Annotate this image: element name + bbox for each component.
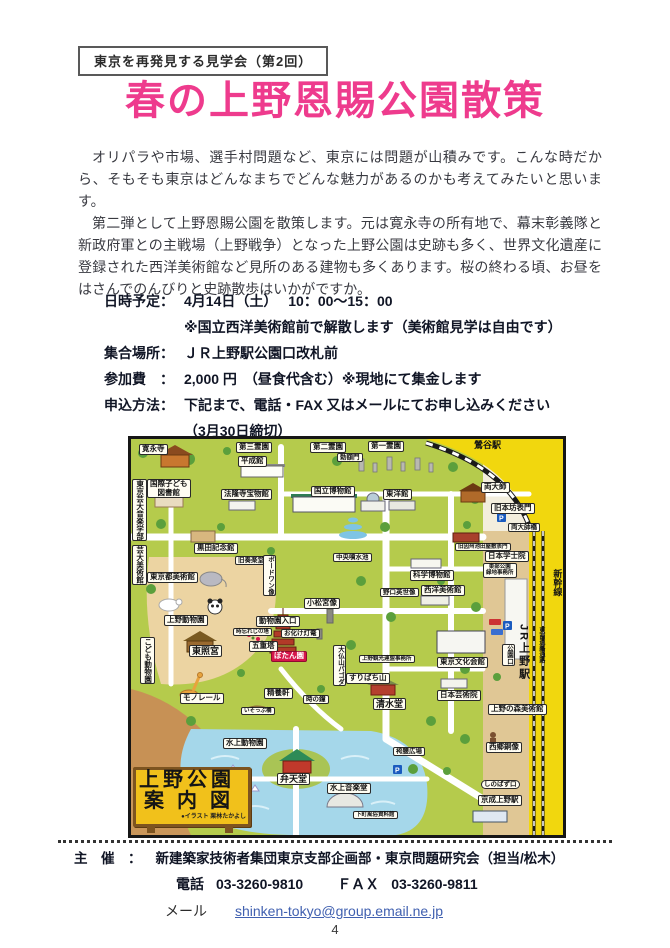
flyer-page: 東京を再発見する見学会（第2回） 春の上野恩賜公園散策 オリパラや市場、選手村問… — [0, 0, 670, 948]
map-label: 東京芸大音楽学部 — [132, 479, 147, 541]
map-label: 水上音楽堂 — [327, 783, 371, 794]
map-label: いそっぷ橋 — [241, 707, 275, 715]
map-label: 時忘れじの塔 — [233, 628, 272, 636]
detail-value: ＪＲ上野駅公園口改札前 — [184, 340, 604, 366]
email-line: メールshinken-tokyo@group.email.ne.jp — [165, 901, 443, 921]
sign-title-line2: 案内図 — [136, 791, 248, 811]
series-label: 東京を再発見する見学会（第2回） — [94, 54, 312, 69]
map-label: モノレール — [180, 693, 224, 704]
map-label: 東照宮 — [189, 645, 222, 657]
map-label: 袴腰広場 — [393, 747, 425, 756]
map-label: 時の鐘 — [303, 695, 329, 704]
map-label: 鶯谷駅 — [472, 440, 503, 450]
map-label: 中央噴水池 — [333, 553, 372, 562]
map-label: 大仏山パゴダ — [333, 645, 346, 686]
map-label: 芸大美術館 — [132, 545, 147, 585]
tel-number: 03-3260-9810 — [216, 876, 303, 892]
sign-leg — [225, 825, 233, 833]
map-label: 野口英世像 — [380, 588, 419, 597]
sign-leg — [147, 825, 155, 833]
map-label: 京成上野駅 — [478, 795, 522, 806]
event-details: 日時予定： 4月14日（土） 10：00～15：00 ※国立西洋美術館前で解散し… — [104, 288, 604, 444]
detail-row-fee: 参加費 ： 2,000 円 （昼食代含む）※現地にて集金します — [104, 366, 604, 392]
detail-note-dissolve: ※国立西洋美術館前で解散します（美術館見学は自由です） — [184, 314, 604, 340]
map-label: 水上動物園 — [223, 738, 267, 749]
series-label-box: 東京を再発見する見学会（第2回） — [78, 46, 328, 76]
map-label: 動物園入口 — [256, 616, 300, 627]
organizer-line: 主 催 ：新建築家技術者集団東京支部企画部・東京問題研究会（担当/松木） — [74, 847, 614, 867]
tel-label: 電話 — [176, 876, 204, 892]
page-number: 4 — [0, 922, 670, 937]
map-label: 上野観光連盟事務所 — [359, 655, 415, 663]
map-label: 精養軒 — [264, 688, 293, 699]
map-label: 科学博物館 — [410, 570, 454, 581]
map-label: 第二霊園 — [310, 442, 346, 453]
detail-label: 参加費 ： — [104, 366, 184, 392]
map-label: 両大師 — [481, 482, 510, 493]
map-label: 旧本坊表門 — [491, 503, 535, 514]
detail-value: 下記まで、電話・FAX 又はメールにてお申し込みください — [184, 392, 604, 418]
map-label: 小松宮像 — [304, 598, 340, 609]
map-label: 第三霊園 — [236, 442, 272, 453]
dotted-divider — [58, 840, 612, 843]
phone-fax-line: 電話03-3260-9810ＦＡＸ03-3260-9811 — [176, 874, 478, 894]
map-label: 黒田記念館 — [194, 543, 238, 554]
map-label: ボードワン像 — [263, 555, 276, 596]
map-label: ぼたん園 — [271, 651, 307, 662]
map-label: 上野の森美術館 — [488, 704, 547, 715]
map-label: 勅額門 — [337, 453, 363, 462]
map-label: JR上野駅 — [515, 624, 532, 681]
map-label: 日本学士院 — [485, 551, 529, 562]
detail-value: 4月14日（土） 10：00～15：00 — [184, 288, 604, 314]
detail-row-meeting-place: 集合場所： ＪＲ上野駅公園口改札前 — [104, 340, 604, 366]
page-title: 春の上野恩賜公園散策 — [0, 78, 670, 124]
detail-row-datetime: 日時予定： 4月14日（土） 10：00～15：00 — [104, 288, 604, 314]
email-label: メール — [165, 903, 207, 919]
map-label: 下町風俗資料館 — [353, 811, 398, 819]
map-label: 日本芸術院 — [437, 690, 481, 701]
map-label: 平成館 — [238, 456, 267, 467]
fax-number: 03-3260-9811 — [391, 876, 477, 892]
detail-label: 日時予定： — [104, 288, 184, 314]
map-label: 上野動物園 — [164, 615, 208, 626]
detail-label: 申込方法： — [104, 392, 184, 418]
organizer-label: 主 催 ： — [74, 851, 142, 866]
map-label: 国立博物館 — [311, 486, 355, 497]
intro-paragraph-1: オリパラや市場、選手村問題など、東京には問題が山積みです。こんな時だから、そもそ… — [78, 146, 602, 212]
map-label: 東西連絡通路 — [535, 627, 546, 663]
fax-label: ＦＡＸ — [337, 876, 379, 892]
map-label: 東京都美術館 — [147, 572, 198, 583]
park-sign-board: 上野公園 案内図 ●イラスト 栗林たかよし — [133, 767, 253, 833]
map-label: 弁天堂 — [277, 773, 310, 785]
map-label: 公園口 — [502, 644, 515, 666]
map-label: 新幹線 — [550, 569, 564, 596]
map-label: すりばち山 — [346, 673, 390, 684]
sign-title-line1: 上野公園 — [136, 770, 248, 791]
map-label: お化け灯篭 — [281, 629, 320, 638]
map-label: 西郷銅像 — [486, 742, 522, 753]
map-label: 清水堂 — [373, 698, 406, 710]
organizer-name: 新建築家技術者集団東京支部企画部・東京問題研究会（担当/松木） — [156, 851, 565, 866]
map-label: 両大師橋 — [508, 523, 540, 532]
detail-label: 集合場所： — [104, 340, 184, 366]
email-link[interactable]: shinken-tokyo@group.email.ne.jp — [235, 903, 443, 919]
detail-row-application: 申込方法： 下記まで、電話・FAX 又はメールにてお申し込みください — [104, 392, 604, 418]
ueno-park-map: P P P 寛永寺第三霊園第二霊園第一霊園鶯谷駅平成館勅額門国際子ども 図書館法… — [128, 436, 566, 838]
map-label: 西洋美術館 — [421, 585, 465, 596]
map-label: 寛永寺 — [139, 444, 168, 455]
map-label: 第一霊園 — [368, 441, 404, 452]
map-label: 東部公園 緑地事務所 — [483, 563, 517, 578]
intro-text: オリパラや市場、選手村問題など、東京には問題が山積みです。こんな時だから、そもそ… — [78, 146, 602, 300]
map-label: 法隆寺宝物館 — [221, 489, 272, 500]
map-label: こども動物園 — [140, 637, 155, 684]
map-label: 東京文化会館 — [437, 657, 488, 668]
map-label: 国際子ども 図書館 — [147, 479, 191, 498]
intro-paragraph-2: 第二弾として上野恩賜公園を散策します。元は寛永寺の所有地で、幕末彰義隊と新政府軍… — [78, 212, 602, 300]
detail-value: 2,000 円 （昼食代含む）※現地にて集金します — [184, 366, 604, 392]
sign-illustrator-credit: ●イラスト 栗林たかよし — [136, 811, 248, 820]
map-label: 東洋館 — [383, 489, 412, 500]
map-label: しのばず口 — [481, 780, 520, 789]
